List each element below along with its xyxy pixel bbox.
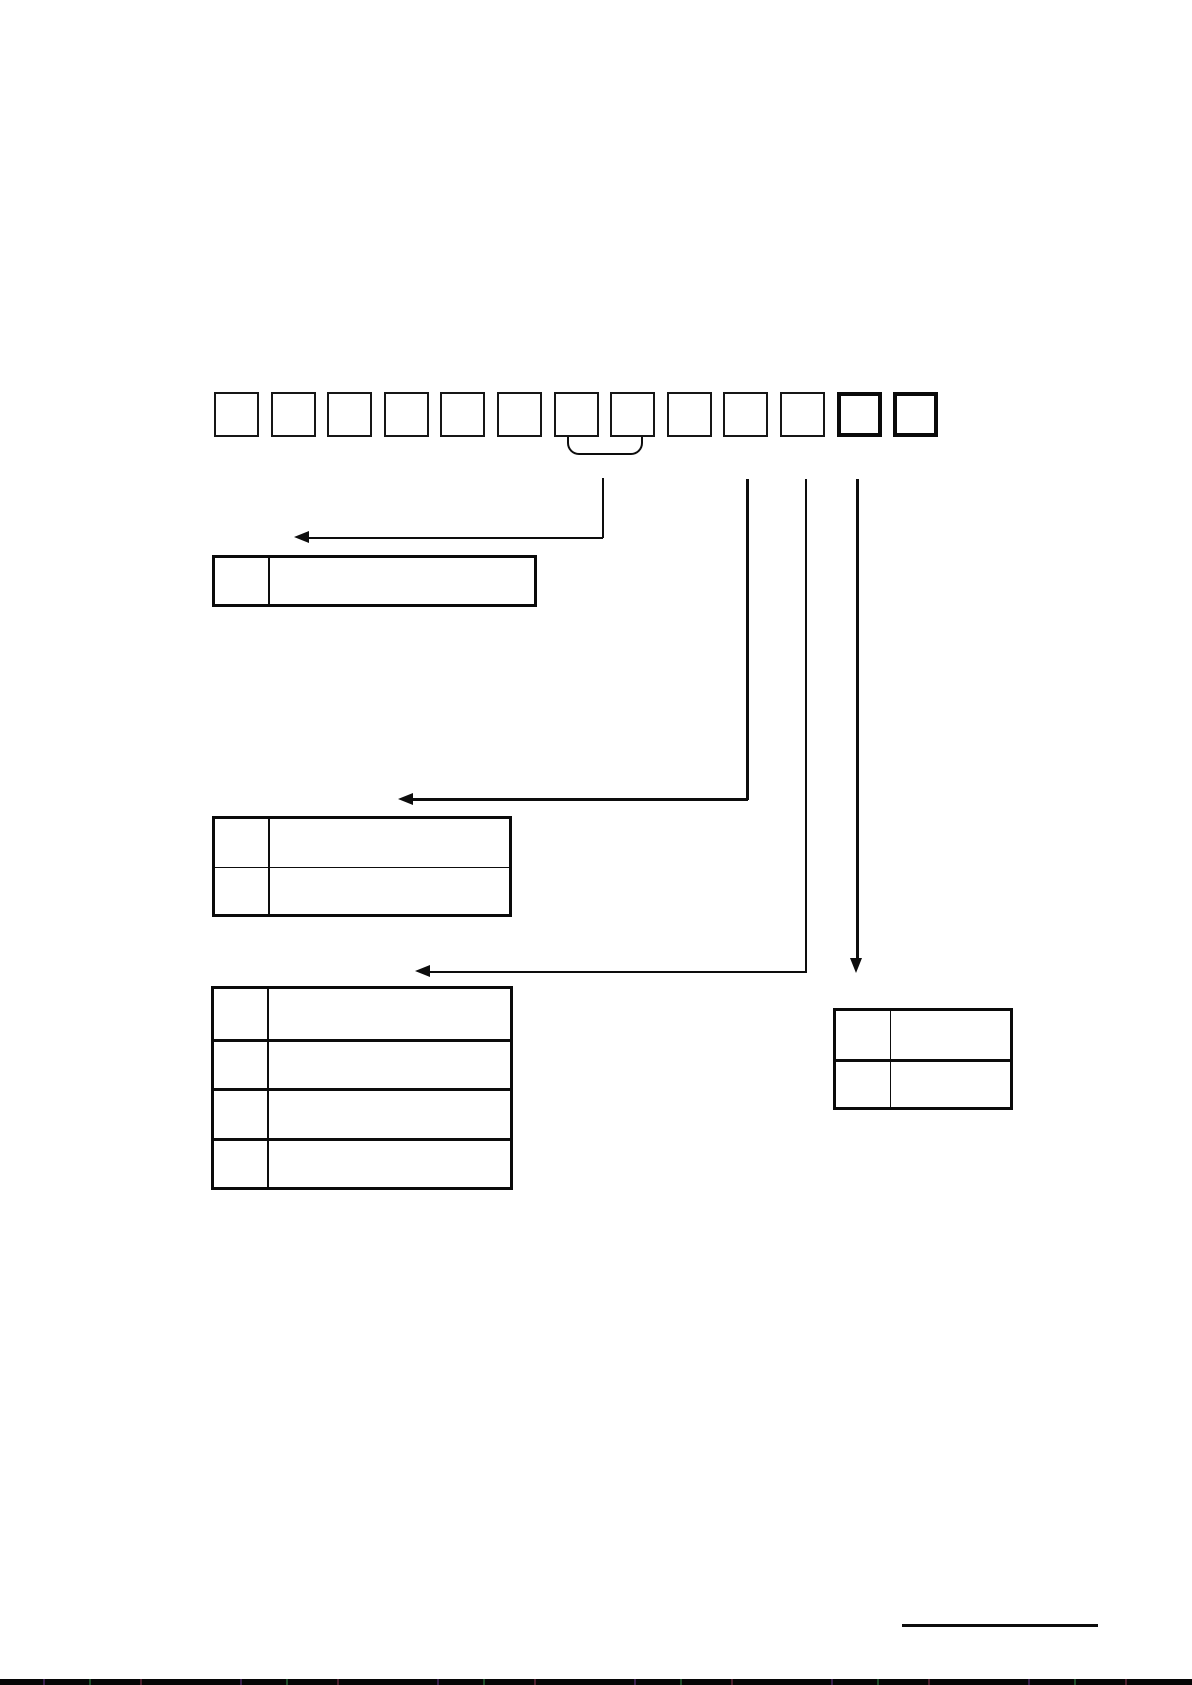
footer-underline — [902, 1624, 1098, 1627]
option-table-2-cell-r1-c2 — [270, 819, 509, 867]
code-box-4 — [384, 392, 429, 437]
option-table-3-cell-r4-c1 — [214, 1138, 269, 1188]
arrow2-horizontal-line — [411, 798, 748, 801]
option-table-2-cell-r2-c2 — [270, 867, 509, 915]
option-table-4-cell-r1-c1 — [836, 1011, 891, 1059]
option-table-4 — [833, 1008, 1013, 1110]
arrow4-vertical-line — [856, 479, 859, 959]
option-table-2-cell-r2-c1 — [215, 867, 270, 915]
code-box-2 — [271, 392, 316, 437]
code-box-13 — [893, 392, 938, 437]
code-box-12 — [837, 392, 882, 437]
option-table-1-cell-r1-c2 — [270, 558, 534, 604]
arrow3-left-arrowhead-icon — [415, 965, 430, 977]
code-box-8 — [610, 392, 655, 437]
option-table-4-cell-r2-c2 — [891, 1059, 1010, 1107]
code-box-7 — [554, 392, 599, 437]
arrow1-left-arrowhead-icon — [294, 531, 309, 543]
digit-group-brace — [567, 437, 643, 455]
option-table-3-cell-r2-c2 — [269, 1039, 510, 1089]
option-table-4-cell-r1-c2 — [891, 1011, 1010, 1059]
code-box-1 — [214, 392, 259, 437]
bottom-scan-edge — [0, 1679, 1192, 1685]
option-table-3-cell-r2-c1 — [214, 1039, 269, 1089]
option-table-3 — [211, 986, 513, 1190]
option-table-3-cell-r1-c2 — [269, 989, 510, 1039]
document-page — [0, 0, 1192, 1685]
option-table-3-cell-r1-c1 — [214, 989, 269, 1039]
code-box-9 — [667, 392, 712, 437]
option-table-2 — [212, 816, 512, 917]
code-box-10 — [723, 392, 768, 437]
option-table-1 — [212, 555, 537, 607]
code-box-11 — [780, 392, 825, 437]
option-table-3-cell-r4-c2 — [269, 1138, 510, 1188]
option-table-3-cell-r3-c2 — [269, 1088, 510, 1138]
option-table-4-cell-r2-c1 — [836, 1059, 891, 1107]
arrow2-vertical-line — [746, 479, 749, 800]
arrow3-horizontal-line — [428, 971, 807, 974]
option-table-2-cell-r1-c1 — [215, 819, 270, 867]
code-box-3 — [327, 392, 372, 437]
code-box-6 — [497, 392, 542, 437]
arrow1-vertical-line — [602, 478, 605, 538]
option-table-3-cell-r3-c1 — [214, 1088, 269, 1138]
option-table-1-cell-r1-c1 — [215, 558, 270, 604]
arrow1-horizontal-line — [307, 537, 603, 540]
arrow3-vertical-line — [805, 479, 807, 972]
arrow2-left-arrowhead-icon — [398, 793, 413, 805]
code-box-5 — [440, 392, 485, 437]
code-box-row — [214, 392, 938, 437]
arrow4-down-arrowhead-icon — [850, 958, 862, 973]
